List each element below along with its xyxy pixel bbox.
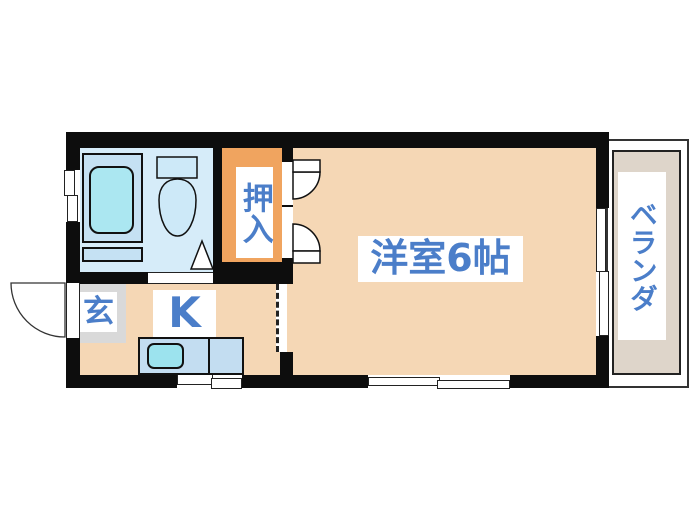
closet-label: 押入 <box>236 167 273 258</box>
kitchen-window-pane2 <box>211 378 242 389</box>
bathroom-window-pane1 <box>64 170 75 196</box>
veranda-sliding-door-pane2 <box>599 271 609 336</box>
main-room-window-pane1 <box>368 377 440 386</box>
bathroom-window-pane2 <box>67 195 78 222</box>
wall-bottom-center <box>242 375 368 388</box>
wall-top <box>66 132 609 148</box>
counter-divider <box>208 339 212 373</box>
bathtub-step <box>82 247 143 262</box>
floor-plan: 洋室6帖 押入 ベランダ K 玄 <box>0 0 700 525</box>
bathroom-door <box>188 238 218 274</box>
wall-bottom-right <box>510 375 609 388</box>
main-room-label: 洋室6帖 <box>358 236 523 282</box>
toilet <box>150 150 205 242</box>
closet-double-door-swing <box>283 155 328 270</box>
bathtub <box>89 166 134 234</box>
wall-left-upper <box>66 148 80 170</box>
kitchen-label: K <box>153 290 216 337</box>
main-room-window-pane2 <box>437 380 510 389</box>
wall-bottom-left <box>66 375 177 388</box>
kitchen-sink <box>147 343 184 369</box>
wall-closet-bottom <box>213 262 293 284</box>
veranda-sliding-door-pane1 <box>596 208 606 272</box>
kitchen-window-pane1 <box>177 374 213 385</box>
wall-kitchen-stub <box>280 352 293 375</box>
veranda-label: ベランダ <box>618 172 666 340</box>
wall-right-upper <box>596 148 609 208</box>
entrance-door-swing <box>5 276 85 346</box>
entrance-label: 玄 <box>80 292 117 332</box>
partition-track <box>276 284 287 352</box>
